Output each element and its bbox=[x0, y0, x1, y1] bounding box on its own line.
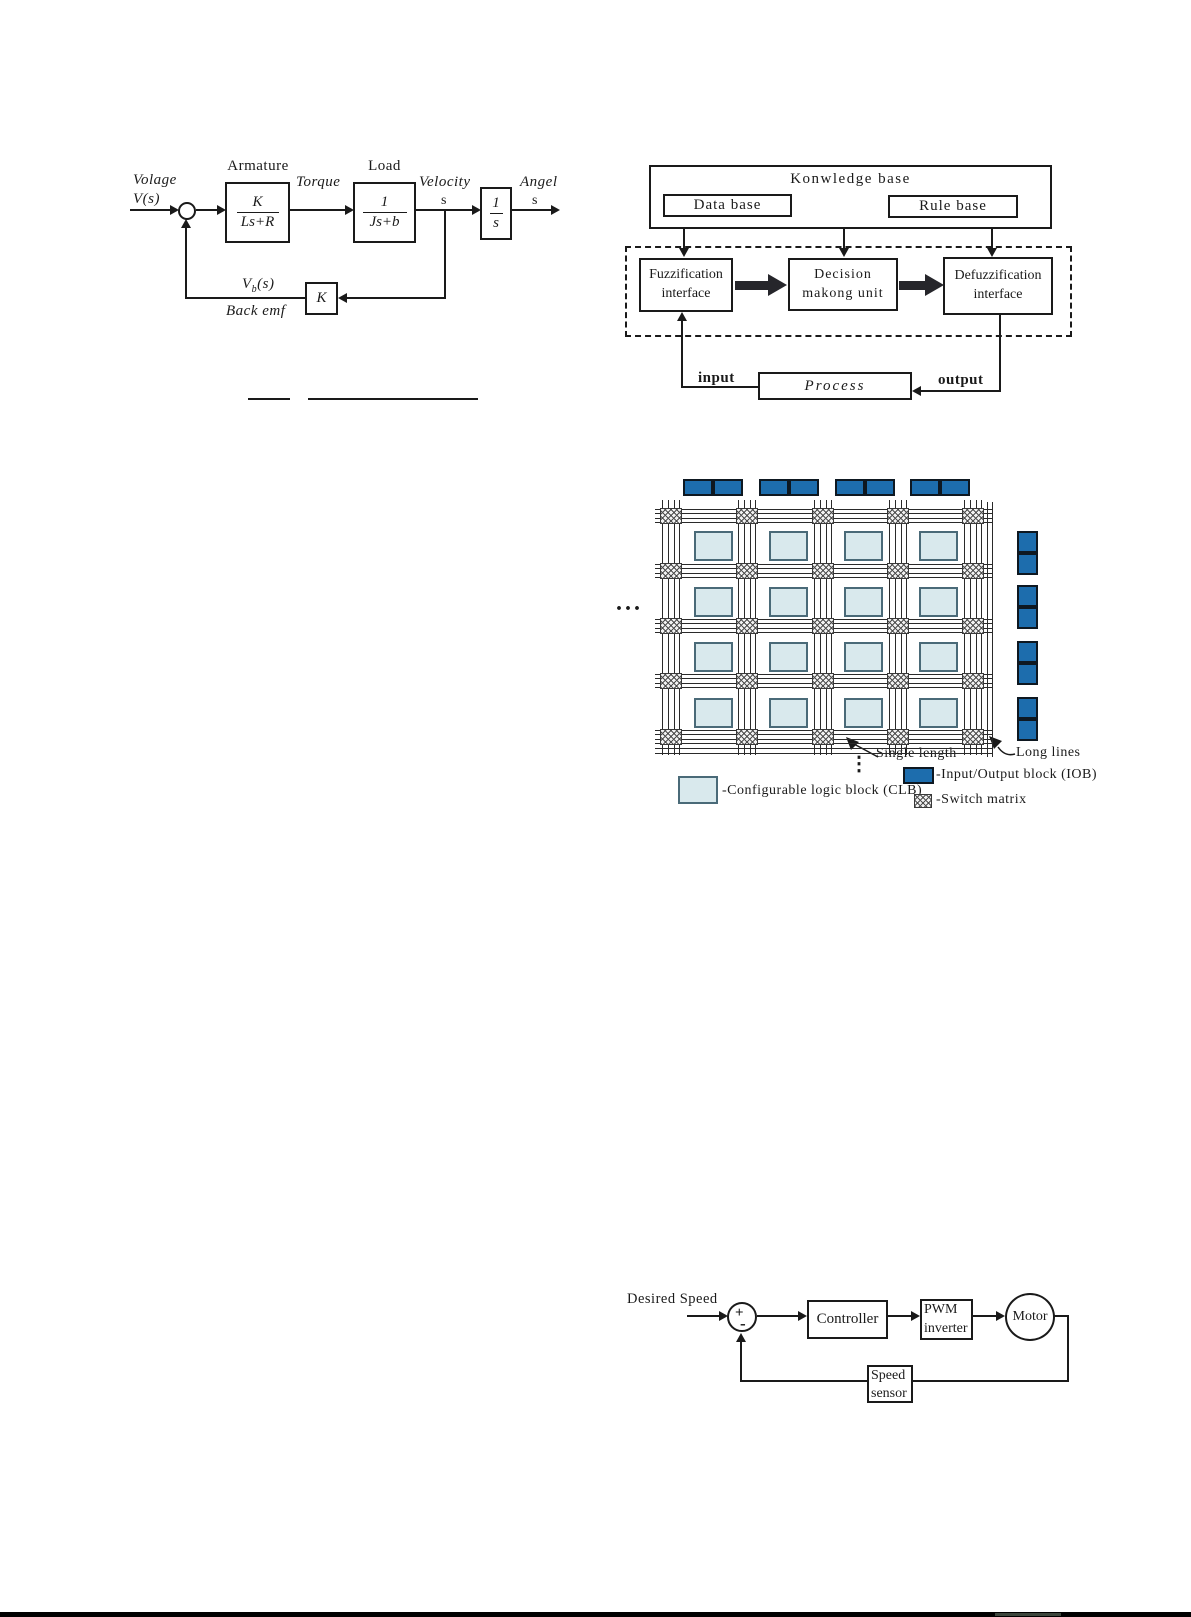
thick-arrow-shaft bbox=[899, 281, 925, 290]
voltage-label: Volage bbox=[133, 172, 177, 189]
iob-pair-right bbox=[1017, 531, 1038, 575]
arrowhead bbox=[677, 312, 687, 321]
motor-circle: Motor bbox=[1005, 1293, 1055, 1341]
input-line bbox=[681, 320, 683, 388]
clb-block bbox=[694, 698, 733, 728]
switch-matrix bbox=[962, 673, 984, 689]
long-line-vertical bbox=[992, 502, 993, 757]
switch-matrix bbox=[660, 673, 682, 689]
scan-edge-bar bbox=[0, 1612, 1191, 1617]
iob-pair-right bbox=[1017, 641, 1038, 685]
iob-pair-top bbox=[835, 479, 895, 496]
thick-arrow-head bbox=[925, 274, 944, 296]
clb-legend-label: -Configurable logic block (CLB) bbox=[722, 783, 922, 799]
clb-block bbox=[844, 587, 883, 617]
fraction-bar bbox=[363, 212, 407, 214]
long-line-vertical bbox=[987, 502, 988, 757]
output-line bbox=[512, 209, 552, 211]
clb-block bbox=[694, 587, 733, 617]
iob-pair-top bbox=[759, 479, 819, 496]
arrowhead bbox=[736, 1333, 746, 1342]
arrowhead bbox=[912, 386, 921, 396]
long-line-horizontal bbox=[655, 753, 993, 754]
feedback-line bbox=[742, 1380, 867, 1382]
vb-rest: (s) bbox=[257, 276, 274, 292]
rule-base-box: Rule base bbox=[888, 195, 1018, 218]
velocity-label: Velocity bbox=[419, 174, 470, 191]
motor-label: Motor bbox=[1013, 1309, 1048, 1325]
long-lines-label: Long lines bbox=[1016, 745, 1081, 761]
iob-block bbox=[683, 479, 713, 496]
line bbox=[973, 1315, 997, 1317]
long-line-horizontal bbox=[655, 748, 993, 749]
iob-block bbox=[1017, 697, 1038, 719]
switch-legend-label: -Switch matrix bbox=[936, 792, 1027, 808]
load-denominator: Js+b bbox=[369, 214, 399, 231]
vb-main: V bbox=[242, 276, 252, 292]
back-emf-label: Back emf bbox=[226, 303, 285, 320]
switch-matrix bbox=[812, 673, 834, 689]
load-label: Load bbox=[353, 158, 416, 175]
clb-block bbox=[769, 587, 808, 617]
clb-block bbox=[844, 698, 883, 728]
clb-block bbox=[694, 531, 733, 561]
angle-label: Angel bbox=[520, 174, 558, 191]
iob-block bbox=[789, 479, 819, 496]
line bbox=[888, 1315, 912, 1317]
switch-matrix bbox=[812, 618, 834, 634]
defuzzification-label: Defuzzificationinterface bbox=[954, 267, 1041, 305]
iob-legend-swatch bbox=[903, 767, 934, 784]
switch-matrix bbox=[812, 508, 834, 524]
desired-speed-label: Desired Speed bbox=[627, 1291, 718, 1308]
switch-matrix bbox=[962, 618, 984, 634]
iob-pair-top bbox=[910, 479, 970, 496]
arrowhead bbox=[551, 205, 560, 215]
back-emf-signal-label: Vb(s) bbox=[242, 276, 275, 295]
feedback-line bbox=[740, 1341, 742, 1382]
controller-label: Controller bbox=[817, 1311, 879, 1328]
clb-block bbox=[769, 642, 808, 672]
load-numerator: 1 bbox=[381, 194, 389, 211]
switch-matrix bbox=[660, 563, 682, 579]
clb-legend-swatch bbox=[678, 776, 718, 804]
switch-matrix bbox=[660, 508, 682, 524]
output-label: output bbox=[938, 372, 984, 389]
clb-block bbox=[844, 642, 883, 672]
clb-block bbox=[919, 587, 958, 617]
feedback-gain-block: K bbox=[305, 282, 338, 315]
clb-block bbox=[919, 531, 958, 561]
thick-arrow-shaft bbox=[735, 281, 768, 290]
feedback-tap-line bbox=[444, 211, 446, 299]
switch-matrix bbox=[812, 729, 834, 745]
iob-block bbox=[1017, 663, 1038, 685]
process-label: Process bbox=[805, 378, 866, 395]
equation-fraction-bar bbox=[308, 398, 478, 400]
process-box: Process bbox=[758, 372, 912, 400]
switch-matrix bbox=[887, 508, 909, 524]
angle-s-label: s bbox=[532, 193, 538, 209]
switch-matrix bbox=[736, 729, 758, 745]
line bbox=[757, 1315, 799, 1317]
iob-block bbox=[713, 479, 743, 496]
data-base-label: Data base bbox=[694, 197, 762, 214]
feedback-gain-label: K bbox=[316, 290, 326, 307]
thick-arrow-head bbox=[768, 274, 787, 296]
switch-matrix bbox=[962, 729, 984, 745]
switch-matrix bbox=[736, 508, 758, 524]
speed-sensor-label: Speedsensor bbox=[871, 1368, 907, 1401]
iob-block bbox=[865, 479, 895, 496]
output-line bbox=[918, 390, 1001, 392]
arrowhead bbox=[911, 1311, 920, 1321]
switch-matrix bbox=[736, 673, 758, 689]
data-base-box: Data base bbox=[663, 194, 792, 217]
switch-matrix bbox=[736, 563, 758, 579]
armature-denominator: Ls+R bbox=[241, 214, 274, 231]
arrowhead bbox=[996, 1311, 1005, 1321]
switch-matrix bbox=[887, 729, 909, 745]
iob-block bbox=[1017, 585, 1038, 607]
pwm-inverter-label: PWMinverter bbox=[924, 1302, 968, 1336]
switch-legend-swatch bbox=[914, 794, 932, 808]
decision-making-label: Decisionmakong unit bbox=[802, 266, 883, 304]
input-line bbox=[130, 209, 172, 211]
summing-junction: + - bbox=[727, 1302, 757, 1332]
summing-junction bbox=[178, 202, 196, 220]
iob-block bbox=[1017, 553, 1038, 575]
switch-matrix bbox=[887, 618, 909, 634]
integrator-numerator: 1 bbox=[492, 195, 500, 212]
fraction-bar bbox=[490, 213, 503, 215]
feedback-line bbox=[1067, 1315, 1069, 1382]
decision-making-box: Decisionmakong unit bbox=[788, 258, 898, 311]
clb-block bbox=[919, 698, 958, 728]
defuzzification-box: Defuzzificationinterface bbox=[943, 257, 1053, 315]
input-label: input bbox=[698, 370, 735, 387]
integrator-block: 1 s bbox=[480, 187, 512, 240]
feedback-line bbox=[913, 1380, 1069, 1382]
switch-matrix bbox=[962, 563, 984, 579]
switch-matrix bbox=[887, 673, 909, 689]
iob-block bbox=[1017, 641, 1038, 663]
arrowhead bbox=[338, 293, 347, 303]
feedback-line bbox=[186, 297, 305, 299]
load-block: 1 Js+b bbox=[353, 182, 416, 243]
feedback-line bbox=[340, 297, 446, 299]
feedback-up-line bbox=[185, 227, 187, 299]
switch-matrix bbox=[660, 729, 682, 745]
armature-label: Armature bbox=[225, 158, 291, 175]
iob-block bbox=[1017, 531, 1038, 553]
line bbox=[196, 209, 218, 211]
arrowhead bbox=[181, 219, 191, 228]
iob-block bbox=[759, 479, 789, 496]
input-line bbox=[687, 1315, 719, 1317]
fraction-bar bbox=[237, 212, 279, 214]
integrator-denominator: s bbox=[493, 215, 499, 232]
iob-block bbox=[910, 479, 940, 496]
clb-block bbox=[844, 531, 883, 561]
armature-numerator: K bbox=[252, 194, 262, 211]
iob-pair-right bbox=[1017, 697, 1038, 741]
clb-block bbox=[769, 698, 808, 728]
paper-page: Volage V(s) Armature K Ls+R Torque Load … bbox=[0, 0, 1191, 1617]
switch-matrix bbox=[812, 563, 834, 579]
clb-block bbox=[919, 642, 958, 672]
fuzzification-label: Fuzzificationinterface bbox=[649, 266, 723, 304]
iob-pair-top bbox=[683, 479, 743, 496]
pwm-inverter-box: PWMinverter bbox=[920, 1299, 973, 1340]
knowledge-base-title: Konwledge base bbox=[651, 171, 1050, 188]
horizontal-ellipsis: ... bbox=[616, 590, 643, 617]
arrowhead bbox=[798, 1311, 807, 1321]
voltage-signal-label: V(s) bbox=[133, 191, 160, 208]
switch-matrix bbox=[962, 508, 984, 524]
switch-matrix bbox=[660, 618, 682, 634]
equation-fraction-bar bbox=[248, 398, 290, 400]
rule-base-label: Rule base bbox=[919, 198, 987, 215]
line bbox=[290, 209, 346, 211]
speed-sensor-box: Speedsensor bbox=[867, 1365, 913, 1403]
fuzzification-box: Fuzzificationinterface bbox=[639, 258, 733, 312]
minus-sign: - bbox=[740, 1314, 746, 1334]
switch-matrix bbox=[887, 563, 909, 579]
velocity-s-label: s bbox=[441, 193, 447, 209]
controller-box: Controller bbox=[807, 1300, 888, 1339]
iob-block bbox=[835, 479, 865, 496]
clb-block bbox=[769, 531, 808, 561]
iob-block bbox=[940, 479, 970, 496]
output-line bbox=[999, 315, 1001, 392]
iob-pair-right bbox=[1017, 585, 1038, 629]
armature-block: K Ls+R bbox=[225, 182, 290, 243]
iob-block bbox=[1017, 719, 1038, 741]
iob-legend-label: -Input/Output block (IOB) bbox=[936, 767, 1097, 783]
iob-block bbox=[1017, 607, 1038, 629]
clb-block bbox=[694, 642, 733, 672]
scan-noise bbox=[995, 1613, 1061, 1616]
switch-matrix bbox=[736, 618, 758, 634]
torque-label: Torque bbox=[296, 174, 340, 191]
